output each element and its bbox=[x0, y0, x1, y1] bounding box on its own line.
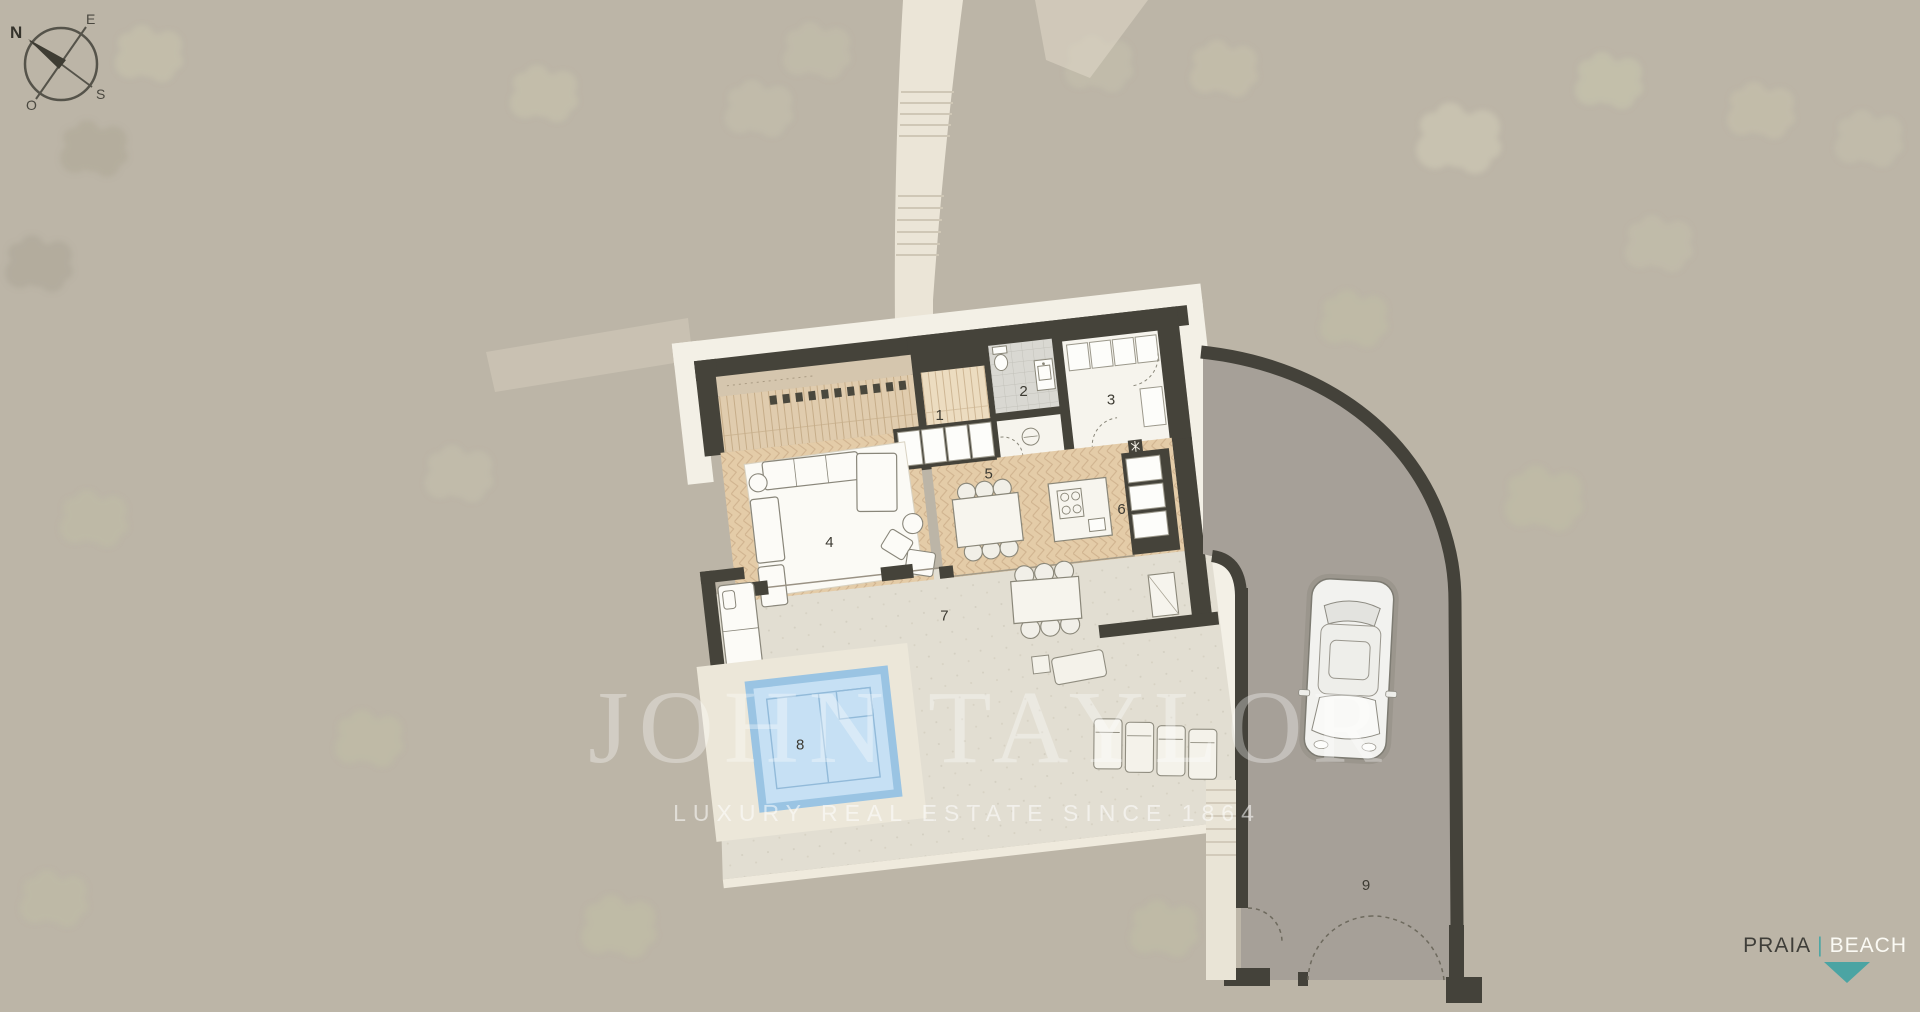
site-plan-canvas: 1 2 3 4 5 6 7 8 bbox=[0, 0, 1920, 1007]
tree-icon bbox=[5, 235, 73, 292]
compass-label-e: E bbox=[86, 11, 95, 27]
house-plan: 1 2 3 4 5 6 7 8 bbox=[660, 283, 1262, 888]
tree-icon bbox=[115, 25, 183, 82]
tree-icon bbox=[510, 65, 578, 122]
sun-lounger bbox=[1157, 726, 1185, 776]
gate-post bbox=[1298, 972, 1308, 986]
side-walkway bbox=[1206, 780, 1236, 980]
location-label-praia: PRAIA bbox=[1743, 934, 1811, 957]
driveway-inner-wall bbox=[1235, 588, 1248, 908]
sink-icon bbox=[1034, 359, 1055, 391]
floor-plan-svg: 1 2 3 4 5 6 7 8 bbox=[0, 0, 1920, 1007]
swimming-pool bbox=[697, 643, 928, 842]
tree-icon bbox=[1625, 215, 1693, 272]
lounger-side-table bbox=[1032, 655, 1051, 674]
island-sink-icon bbox=[1088, 518, 1105, 532]
room-label-9: 9 bbox=[1362, 877, 1370, 894]
tree-icon bbox=[20, 870, 88, 927]
tree-icon bbox=[1320, 290, 1388, 347]
room-label-3: 3 bbox=[1107, 391, 1115, 408]
tree-icon bbox=[1505, 466, 1583, 532]
location-badge: PRAIA|BEACH bbox=[1743, 934, 1907, 958]
tree-icon bbox=[1727, 82, 1795, 139]
tree-icon bbox=[1130, 900, 1198, 957]
car-roof bbox=[1318, 623, 1382, 696]
compass-label-s: S bbox=[96, 86, 105, 102]
tree-icon bbox=[60, 490, 128, 547]
tree-icon bbox=[1416, 103, 1501, 174]
tree-icon bbox=[425, 445, 493, 502]
hvac-icon bbox=[1128, 439, 1143, 454]
tree-icon bbox=[783, 22, 851, 79]
tree-icon bbox=[1575, 52, 1643, 109]
room-label-4: 4 bbox=[825, 534, 833, 551]
tree-icon bbox=[335, 710, 403, 767]
car-windshield bbox=[1311, 694, 1381, 741]
tree-icon bbox=[582, 895, 657, 958]
room-label-7: 7 bbox=[940, 608, 948, 625]
tree-icon bbox=[725, 80, 793, 137]
room-label-5: 5 bbox=[985, 466, 993, 483]
room-3-entrance bbox=[1062, 331, 1170, 451]
room-label-6: 6 bbox=[1117, 501, 1125, 518]
sun-lounger bbox=[1125, 722, 1153, 772]
location-separator: | bbox=[1811, 934, 1829, 957]
compass-label-o: O bbox=[26, 97, 37, 113]
dining-table bbox=[952, 492, 1023, 547]
sun-lounger bbox=[1188, 729, 1216, 779]
driveway-wall-corner bbox=[1446, 977, 1482, 1003]
sun-lounger bbox=[1094, 719, 1122, 769]
car-mirror bbox=[1299, 689, 1310, 696]
patio-storage bbox=[1148, 572, 1179, 617]
room-label-1: 1 bbox=[936, 407, 944, 424]
kitchen-island bbox=[1048, 477, 1112, 541]
tree-icon bbox=[1835, 110, 1903, 167]
room-label-8: 8 bbox=[796, 737, 804, 754]
compass-label-n: N bbox=[10, 23, 22, 42]
tree-icon bbox=[1190, 40, 1258, 97]
room-label-2: 2 bbox=[1019, 383, 1027, 400]
car-mirror bbox=[1386, 691, 1397, 698]
driveway-wall bbox=[1449, 925, 1464, 983]
outdoor-table bbox=[1011, 576, 1082, 623]
location-label-beach: BEACH bbox=[1830, 934, 1907, 957]
tree-icon bbox=[60, 120, 128, 177]
car-icon bbox=[1295, 573, 1403, 766]
beach-direction-arrow bbox=[1824, 962, 1870, 983]
